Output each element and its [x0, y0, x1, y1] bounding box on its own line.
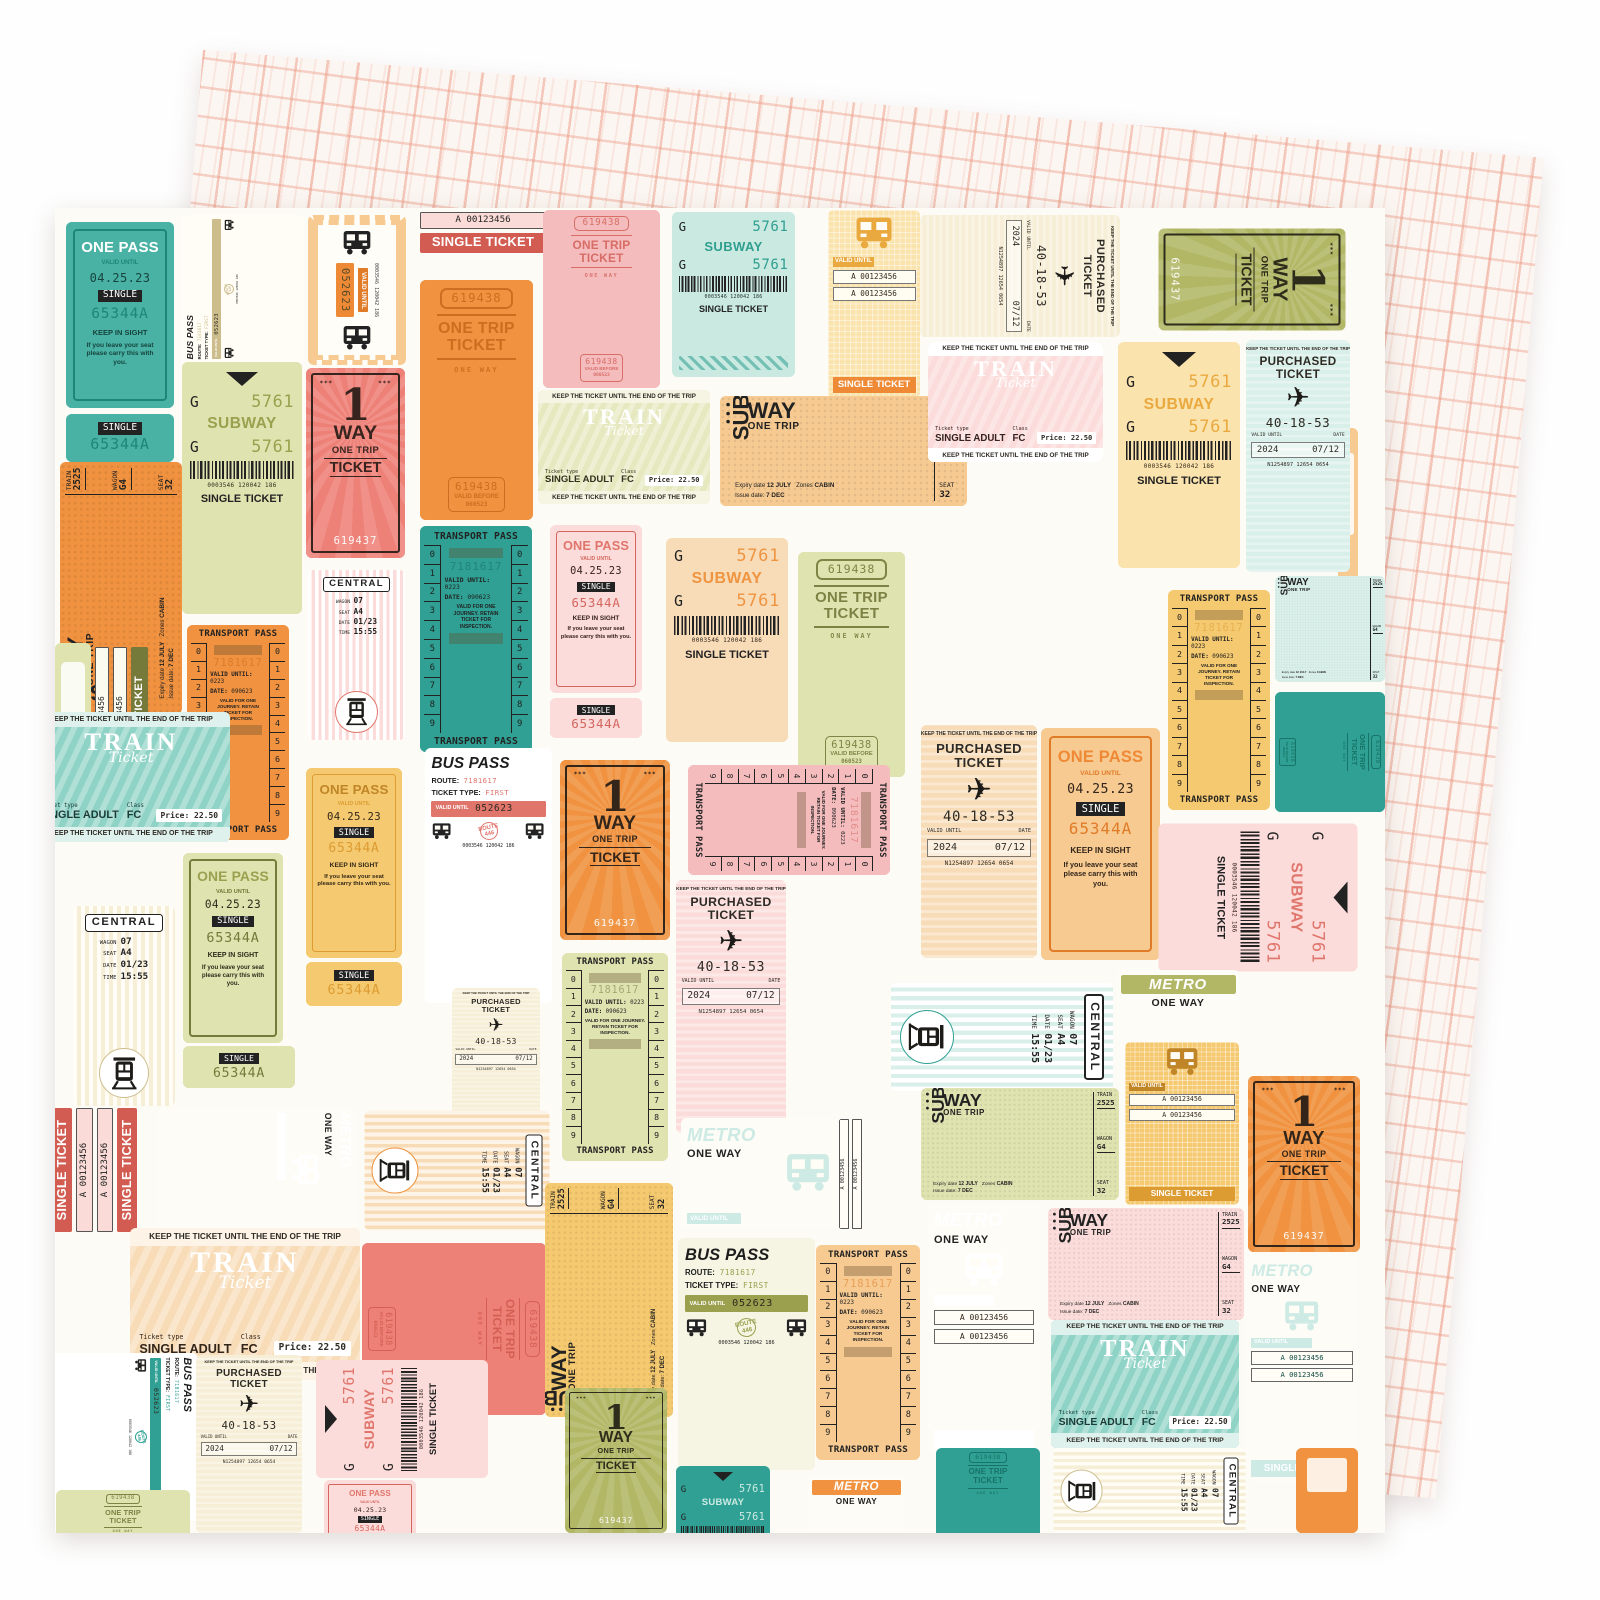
ticket-part — [792, 1182, 801, 1191]
ticket-part: 6 — [649, 1074, 664, 1091]
ticket-part: 2525 — [73, 468, 84, 491]
ticket-part: 0 — [856, 769, 873, 784]
ticket-part: Ticket typeSINGLE ADULT — [545, 470, 614, 487]
bus-icon — [1164, 1046, 1200, 1076]
ticket-part: ONE PASS VALID UNTIL 04.25.23 SINGLE 653… — [328, 1484, 412, 1533]
ticket-part: 6 — [755, 857, 772, 872]
ticket-part: TRAIN2525 WAGONG4 SEAT32 — [65, 468, 177, 496]
ticket-part: ****** 1 WAY ONE TRIP TICKET 619437 — [565, 765, 665, 935]
ticket-one-trip: 619438 ONE TRIPTICKET ONE WAY 619438 VAL… — [798, 552, 905, 777]
barcode — [674, 616, 780, 635]
valid-until-label: VALID UNTIL — [455, 1048, 475, 1051]
valid-year: 2024 — [933, 842, 957, 854]
ticket-part: 7181617 — [720, 1268, 756, 1277]
one-trip-label: ONE TRIP — [943, 1108, 985, 1117]
valid-until-label: VALID UNTIL — [436, 806, 469, 812]
punch-band — [844, 1347, 892, 1357]
ticket-subway-trip: ●●● SUB WAYONE TRIP Expiry date 12 JULY … — [1048, 1208, 1244, 1320]
ticket-part — [1309, 1316, 1315, 1319]
ticket-part — [397, 1165, 402, 1169]
keep-in-sight: KEEP IN SIGHT — [573, 615, 620, 622]
ticket-slot: METRO ONE WAY — [808, 1476, 905, 1533]
date-value: 07/12 — [515, 1056, 532, 1063]
ticket-script: Ticket — [130, 1273, 360, 1292]
single-chip: SINGLE — [219, 1053, 258, 1064]
ticket-part: G5761 — [674, 547, 780, 567]
metro-title: METRO — [687, 1124, 777, 1145]
ticket-part: TRAIN — [551, 1188, 558, 1209]
ticket-bus-block: VALID UNTILA 00123456A 00123456SINGLE TI… — [1125, 1042, 1239, 1205]
ticket-slot: 619438 ONE TRIPTICKET ONE WAY 619438 VAL… — [543, 210, 660, 388]
ticket-part — [861, 241, 868, 248]
ticket-stub: SINGLE 65344A — [66, 414, 174, 462]
ticket-part: 0 — [191, 643, 206, 661]
ticket-serial: N1254897 12654 0654 — [996, 247, 1002, 306]
ticket-part: METRO ONE WAY — [1116, 970, 1240, 1042]
ticket-part: DATE: 090623 — [210, 689, 266, 696]
ticket-part: CENTRAL WAGON07 SEATA4 DATE01/23 TIME15:… — [308, 570, 405, 740]
price-tag: Price: 22.50 — [1169, 1416, 1232, 1429]
ticket-part: 2 — [566, 1005, 581, 1022]
triangle-icon — [713, 1472, 733, 1481]
one-pass-title: ONE PASS — [81, 239, 159, 256]
ticket-part: 2525 — [1373, 582, 1383, 587]
ticket-transport: TRANSPORT PASS 0123456789 7181617 VALID … — [1168, 590, 1270, 810]
ticket-part: WAGON — [336, 600, 350, 605]
ticket-slot: METRO ONE WAY VALID UNTIL — [158, 1108, 358, 1230]
ticket-part — [1290, 1323, 1297, 1330]
ticket-purchased: KEEP THE TICKET UNTIL THE END OF THE TRI… — [1246, 340, 1350, 572]
ticket-part — [528, 835, 532, 839]
ticket-serial: N1254897 12654 0654 — [223, 1460, 276, 1465]
ticket-part — [880, 241, 887, 248]
gate-letter: G — [1126, 374, 1135, 391]
ticket-code: 0003546 120042 186 — [372, 263, 378, 317]
ticket-part: 8 — [512, 695, 528, 714]
ticket-serial: N1254897 12654 0654 — [1267, 462, 1329, 468]
ticket-serial: 619438 — [440, 288, 514, 309]
valid-until-bar: VALID UNTIL — [833, 257, 875, 267]
ticket-number-box: A 00123456 — [420, 212, 546, 229]
ticket-serial: N1254897 12654 0654 — [699, 1009, 764, 1016]
one-pass-title: ONE PASS — [563, 539, 629, 554]
transport-pass-title: TRANSPORT PASS — [424, 736, 528, 747]
ticket-bus: BUS PASS ROUTE: 7181617 TICKET TYPE: FIR… — [182, 215, 304, 363]
ticket-part: 32 — [939, 490, 961, 501]
ticket-part: SEAT32 — [1373, 671, 1383, 680]
ticket-part: 7181617 VALID UNTIL: 0223 DATE: 090623 V… — [581, 970, 649, 1143]
ticket-part: Ticket typeSINGLE ADULT — [1059, 1410, 1135, 1428]
one-way-label: ONE WAY — [585, 273, 619, 279]
valid-until-label: VALID UNTIL — [153, 1360, 157, 1383]
single-ticket-label: SINGLE TICKET — [674, 649, 780, 662]
train-number: 5761 — [251, 392, 294, 411]
ticket-part — [986, 1258, 997, 1266]
ticket-part: WAYONE TRIP — [748, 402, 800, 432]
ticket-part: ****** 1 WAY ONE TRIP TICKET 619437 — [560, 760, 670, 940]
ticket-part: 2525 — [1222, 1218, 1240, 1226]
ticket-part: 2 — [424, 583, 440, 602]
ticket-part: 1 — [191, 661, 206, 679]
purchased-title: PURCHASEDTICKET — [1081, 239, 1106, 313]
ticket-meta: Expiry date 12 JULY Zones CABINIssue dat… — [1060, 1301, 1214, 1316]
ticket-part: G5761 — [190, 392, 294, 412]
ticket-slot: CENTRAL WAGON07 SEATA4 DATE01/23 TIME15:… — [308, 570, 405, 740]
digit-rail: 0123456789 — [820, 1263, 836, 1442]
ticket-part: 6 — [755, 769, 772, 784]
ticket-part — [229, 349, 230, 351]
ticket-part — [361, 249, 367, 255]
ticket-part: ONE PASS VALID UNTIL 04.25.23 SINGLE 653… — [556, 531, 636, 687]
ticket-part: METRO ONE WAY VALID UNTILA 00123456A 001… — [928, 1203, 1040, 1455]
one-trip-title: ONE TRIPTICKET — [1347, 733, 1368, 770]
ticket-one-pass: ONE PASS VALID UNTIL 04.25.23 SINGLE 653… — [324, 1480, 416, 1533]
ticket-part: SUB WAYONE TRIP Expiry date 12 JULY Zone… — [735, 401, 930, 501]
ticket-part: ROUTE 446 — [431, 822, 545, 840]
ticket-part: SUB WAYONE TRIP — [550, 1218, 580, 1402]
ticket-type-value: SINGLE ADULT — [55, 809, 119, 821]
punch-band — [214, 645, 261, 655]
ticket-part: 32 — [165, 468, 176, 491]
ticket-script: Ticket — [928, 376, 1103, 391]
ticket-part — [698, 1321, 704, 1325]
ticket-part: A4 — [500, 1167, 510, 1193]
ticket-part: TRANSPORT PASS 0123456789 7181617 VALID … — [420, 526, 532, 752]
ticket-serial: 619438 — [830, 740, 872, 752]
ticket-part: ●●● SUB WAYONE TRIP Expiry date 12 JULY … — [1275, 576, 1385, 682]
ticket-part — [1304, 1306, 1314, 1314]
valid-year: 2024 — [1009, 225, 1019, 246]
ticket-meta: Expiry date 12 JULY Zones CABINIssue dat… — [735, 481, 930, 501]
ticket-serial: 619438 — [816, 559, 886, 579]
ticket-slot: G5761 SUBWAY G5761 0003546 120042 186 SI… — [1158, 823, 1357, 971]
purchased-title: PURCHASEDTICKET — [1260, 355, 1337, 381]
ticket-part: 7181617 VALID UNTIL: 0223 DATE: 090623 V… — [705, 783, 873, 856]
keep-ticket-note: KEEP THE TICKET UNTIL THE END OF THE TRI… — [928, 448, 1103, 462]
ticket-part: 3 — [270, 697, 285, 715]
ticket-part: 3 — [806, 857, 823, 872]
one-way-number: 1 — [1290, 1094, 1319, 1129]
ticket-part — [792, 1160, 805, 1170]
pass-number: 65344A — [328, 842, 379, 857]
ticket-subway: G5761 SUBWAY G5761 0003546 120042 186 SI… — [1158, 823, 1357, 971]
ticket-slot: ●●● SUB WAYONE TRIP Expiry date 12 JULY … — [1275, 576, 1385, 682]
keep-note: If you leave your seat please carry this… — [317, 874, 391, 889]
ticket-one-trip: 619438 ONE TRIPTICKET ONE WAY 619438 VAL… — [420, 280, 533, 520]
punch-band — [589, 1039, 640, 1049]
sub-label: SUB — [729, 396, 754, 440]
ticket-part: 7 — [566, 1092, 581, 1109]
metro-title: METRO — [1251, 1261, 1352, 1280]
ticket-part: ROUTE: — [685, 1268, 715, 1277]
keep-ticket-note: KEEP THE TICKET UNTIL THE END OF THE TRI… — [1109, 226, 1114, 326]
one-trip-title: ONE TRIPTICKET — [486, 1298, 521, 1360]
subway-title: SUBWAY — [681, 1498, 765, 1509]
pass-number: 65344A — [213, 1066, 265, 1081]
flight-number: 40-18-53 — [1266, 416, 1330, 430]
ticket-part — [970, 1278, 978, 1286]
ticket-part: KEEP THE TICKET UNTIL THE END OF THE TRI… — [538, 390, 710, 504]
price-tag: Price: 22.50 — [1037, 432, 1095, 444]
ticket-part: METRO ONE WAY VALID UNTIL — [158, 1108, 358, 1230]
keep-ticket-note: KEEP THE TICKET UNTIL THE END OF THE TRI… — [55, 712, 230, 727]
ticket-part — [1187, 1069, 1193, 1075]
ticket-part — [876, 222, 887, 230]
gate-letter: G — [383, 1463, 398, 1471]
ticket-part: ●●● SUB WAYONE TRIP Expiry date 12 JULY … — [545, 1183, 673, 1417]
ticket-part — [962, 1251, 1006, 1291]
ticket-serial: N1254897 12654 0654 — [945, 861, 1014, 868]
ticket-number-box: A 00123456 — [833, 270, 916, 284]
ticket-part: 5 — [820, 1353, 836, 1371]
ticket-part: 7 — [820, 1388, 836, 1406]
ticket-number-box: A 00123456 — [1129, 1094, 1235, 1106]
keep-ticket-note: KEEP THE TICKET UNTIL THE END OF THE TRI… — [55, 827, 230, 842]
ticket-part: ●●● SUB WAYONE TRIP Expiry date 12 JULY … — [1048, 1208, 1244, 1320]
pass-number: 65344A — [571, 596, 620, 610]
bus-pass-title: BUS PASS — [685, 1246, 808, 1265]
ticket-part: DATE — [490, 1148, 496, 1163]
ticket-code: 0003546 120042 186 — [431, 844, 545, 850]
ticket-bus-block: VALID UNTILA 00123456A 00123456SINGLE TI… — [828, 210, 920, 398]
ticket-part: ClassFC — [1142, 1410, 1158, 1428]
ticket-number-box: A 00123456 — [934, 1310, 1034, 1325]
class-value: FC — [621, 475, 636, 486]
ticket-part: ROUTE 446 — [224, 219, 234, 360]
ticket-part — [302, 1175, 305, 1180]
ticket-part: VALID UNTIL: 0223 — [585, 1000, 646, 1007]
ticket-part — [349, 702, 364, 718]
stars-icon: *** — [320, 380, 333, 387]
ticket-part: 7181617 VALID UNTIL: 0223 DATE: 090623 V… — [836, 1263, 901, 1442]
ticket-part: 0123456789 7181617 VALID UNTIL: 0223 DAT… — [820, 1263, 916, 1442]
ticket-part — [539, 831, 542, 833]
sub-label: SUB — [1279, 576, 1290, 596]
valid-until-label: VALID UNTIL — [338, 801, 371, 807]
ticket-part — [801, 1328, 804, 1330]
ticket-part: 07 — [354, 596, 378, 605]
ticket-part: 060523 — [372, 1320, 377, 1337]
ticket-part: ****** 1 WAY ONE TRIP TICKET 619437 — [569, 1392, 663, 1529]
ticket-part — [347, 344, 353, 350]
ticket-label: TICKET — [1235, 253, 1252, 305]
gate-letter: G — [190, 440, 199, 457]
ticket-part: 6 — [1172, 718, 1187, 736]
ticket-part: 9 — [1172, 774, 1187, 792]
ticket-metro: METRO ONE WAY VALID UNTILA 00123456A 001… — [928, 1203, 1040, 1455]
ticket-part — [347, 719, 365, 725]
ticket-part: KEEP THE TICKET UNTIL THE END OF THE TRI… — [920, 215, 1120, 337]
class-label: Class — [241, 1334, 261, 1342]
ticket-part: TRAIN Ticket Ticket typeSINGLE ADULT Cla… — [928, 356, 1103, 449]
one-way-label: ONE WAY — [1251, 1284, 1352, 1295]
ticket-part: ONE PASS VALID UNTIL 04.25.23 SINGLE 653… — [312, 774, 396, 952]
ticket-part: 15:55 — [354, 627, 378, 636]
bus-icon — [134, 1358, 146, 1373]
triangle-icon — [1333, 881, 1347, 913]
ticket-part: 12 JULY — [767, 482, 791, 489]
ticket-part: 1 — [839, 769, 856, 784]
ticket-part: 4 — [649, 1040, 664, 1057]
ticket-part: 2 — [270, 679, 285, 697]
train-icon — [107, 1056, 142, 1091]
ticket-part: 01/23 — [1042, 1033, 1053, 1063]
valid-until-bar: VALID UNTIL — [358, 268, 368, 312]
ticket-one-way: ****** 1 WAY ONE TRIP TICKET 619437 — [560, 760, 670, 940]
ticket-part: VALID UNTIL052623 — [431, 801, 545, 816]
ticket-stub: SINGLE 65344A — [183, 1046, 295, 1088]
ticket-purchased: KEEP THE TICKET UNTIL THE END OF THE TRI… — [452, 988, 540, 1122]
ticket-part: G5761 — [674, 592, 780, 612]
ticket-part: 202407/12 — [1251, 442, 1344, 458]
punch-band — [1195, 690, 1242, 700]
ticket-part — [443, 825, 449, 829]
ticket-central: CENTRAL WAGON07 SEATA4 DATE01/23 TIME15:… — [308, 570, 405, 740]
ticket-part: A4 — [1054, 1033, 1065, 1063]
keep-ticket-note: KEEP THE TICKET UNTIL THE END OF THE TRI… — [130, 1228, 360, 1246]
ticket-part: 0 — [1251, 608, 1266, 626]
keep-ticket-note: KEEP THE TICKET UNTIL THE END OF THE TRI… — [538, 390, 710, 403]
ticket-slot: G5761 SUBWAY G5761 0003546 120042 186 SI… — [666, 538, 788, 742]
ticket-number-box: A 00123456 — [852, 1119, 862, 1229]
stars-icon: *** — [1325, 242, 1332, 255]
ticket-part — [226, 354, 228, 357]
ticket-slot: TRANSPORT PASS 0123456789 7181617 VALID … — [562, 953, 668, 1161]
triangle-icon — [226, 372, 258, 386]
ticket-part: ●●● SUB WAYONE TRIP Expiry date 12 JULY … — [921, 1088, 1119, 1200]
ticket-part — [359, 234, 367, 240]
route-badge: ROUTE 446 — [223, 283, 235, 295]
valid-date: 04.25.23 — [354, 1507, 387, 1514]
stars-icon: *** — [576, 1397, 586, 1402]
single-chip: SINGLE — [98, 422, 143, 434]
ticket-part: WAGON07 SEATA4 DATE01/23 TIME15:55 — [1029, 1011, 1078, 1063]
ticket-part: 7 — [901, 1388, 917, 1406]
ticket-part: 12 JULY — [958, 1181, 977, 1187]
ticket-single-strip: A 00123456A 00123456 — [838, 1118, 894, 1230]
ticket-part: 01/23 — [354, 617, 378, 626]
ticket-part: 32 — [1373, 675, 1383, 680]
way-label: WAY — [1070, 1213, 1111, 1228]
ticket-part: 7 — [1251, 737, 1266, 755]
ticket-part — [371, 1147, 417, 1193]
ticket-part — [930, 1031, 936, 1036]
ticket-part — [135, 1367, 138, 1370]
train-number: 5761 — [1308, 920, 1327, 963]
ticket-part: KEEP THE TICKET UNTIL THE END OF THE TRI… — [452, 988, 540, 1122]
way-label: WAY — [1269, 257, 1288, 301]
ticket-part — [141, 1366, 144, 1370]
ticket-serial: N1254897 12654 0654 — [476, 1067, 516, 1071]
stars-icon: *** — [646, 1397, 656, 1402]
pass-number: 65344A — [571, 717, 621, 731]
ticket-part: DATE: 090623 — [829, 787, 835, 853]
transport-pass-title: TRANSPORT PASS — [876, 769, 886, 872]
ticket-part: 7181617 VALID UNTIL: 0223 DATE: 090623 V… — [1187, 608, 1251, 793]
ticket-part: WAGONG4 — [1097, 1136, 1115, 1153]
ticket-part — [139, 1360, 140, 1362]
ticket-slot: A 00123456A 00123456 — [838, 1118, 894, 1230]
gate-letter: G — [679, 220, 686, 234]
single-chip: SINGLE — [334, 970, 374, 981]
ticket-part: 9 — [705, 857, 722, 872]
ticket-part: TRAIN2525 WAGONG4 SEAT32 — [1218, 1212, 1240, 1316]
train-icon — [342, 697, 371, 726]
ticket-part — [922, 1031, 927, 1043]
subway-title: SUBWAY — [1126, 396, 1232, 414]
ticket-part: 1 — [901, 1281, 917, 1299]
ticket-part: FIRST — [743, 1281, 769, 1290]
ticket-part: METRO ONE WAY VALID UNTIL — [681, 1118, 839, 1230]
ticket-meta: Expiry date 12 JULY Zones CABINIssue dat… — [1282, 670, 1368, 680]
ticket-part: 15:55 — [1179, 1488, 1188, 1512]
one-way-label: ONE WAY — [323, 1113, 333, 1226]
ticket-part: 0 — [512, 545, 528, 564]
valid-before: VALID BEFORE060523 — [1281, 742, 1288, 763]
single-ticket-label: SINGLE TICKET — [429, 1367, 440, 1471]
bus-icon — [341, 229, 373, 256]
ticket-part: 9 — [901, 1424, 917, 1442]
ticket-part: 8 — [1172, 755, 1187, 773]
ticket-part: CABIN — [1317, 670, 1326, 674]
valid-date: 04.25.23 — [570, 566, 622, 578]
valid-until-bar: VALID UNTIL — [687, 1213, 741, 1224]
gate-letter: G — [1263, 831, 1280, 840]
ticket-part: FIRST — [164, 1395, 170, 1412]
ticket-part — [226, 225, 228, 228]
ticket-subway: G5761 SUBWAY G5761 0003546 120042 186 SI… — [1118, 342, 1240, 568]
punch-band — [797, 792, 806, 848]
ticket-part: ROUTE: — [431, 776, 459, 785]
ticket-part: SEAT — [501, 1148, 507, 1163]
ticket-part: VALID UNTILA 00123456A 00123456SINGLE TI… — [828, 210, 920, 398]
ticket-sliver — [1296, 1448, 1358, 1533]
valid-date: 04.25.23 — [205, 899, 261, 912]
valid-before: VALID BEFORE060523 — [585, 366, 619, 378]
ticket-part: TIME — [1178, 1470, 1183, 1484]
ticket-part: 1 — [566, 988, 581, 1005]
ticket-part — [536, 825, 542, 829]
ticket-part — [1092, 1481, 1095, 1499]
ticket-part: WAGON07 SEATA4 DATE01/23 TIME15:55 — [478, 1148, 520, 1193]
ticket-slot: METRO ONE WAY VALID UNTIL — [681, 1118, 839, 1230]
way-label: WAY — [334, 424, 378, 443]
ticket-part: ClassFC — [621, 470, 636, 487]
single-chip: SINGLE — [212, 916, 253, 928]
ticket-part: 7 — [270, 768, 285, 786]
ticket-slot: METRO ONE WAY — [1116, 970, 1240, 1042]
ticket-part: 619438 ONE TRIPTICKET ONE WAY 619438 VAL… — [543, 210, 660, 388]
ticket-type-value: SINGLE ADULT — [545, 475, 614, 486]
single-chip: SINGLE — [334, 827, 374, 838]
date-value: 07/12 — [270, 1445, 293, 1454]
ticket-slot: KEEP THE TICKET UNTIL THE END OF THE TRI… — [452, 988, 540, 1122]
ticket-part — [1188, 1062, 1193, 1065]
ticket-part: 1 — [1172, 626, 1187, 644]
ticket-part — [135, 1360, 138, 1363]
ticket-part: VALID UNTILA 00123456A 00123456SINGLE TI… — [1125, 1042, 1239, 1205]
ticket-part — [226, 221, 228, 224]
ticket-part — [853, 215, 895, 254]
ticket-part: 5 — [424, 639, 440, 658]
valid-year: 2024 — [1257, 445, 1279, 455]
ticket-number-box: A 00123456 — [1251, 1368, 1352, 1381]
journey-note: VALID FOR ONE JOURNEY. RETAIN TICKET FOR… — [1191, 663, 1247, 687]
purchased-title: PURCHASEDTICKET — [471, 998, 521, 1015]
ticket-part — [347, 338, 352, 341]
ticket-slot: KEEP THE TICKET UNTIL THE END OF THE TRI… — [538, 390, 710, 504]
gate-letter: G — [681, 1513, 686, 1523]
